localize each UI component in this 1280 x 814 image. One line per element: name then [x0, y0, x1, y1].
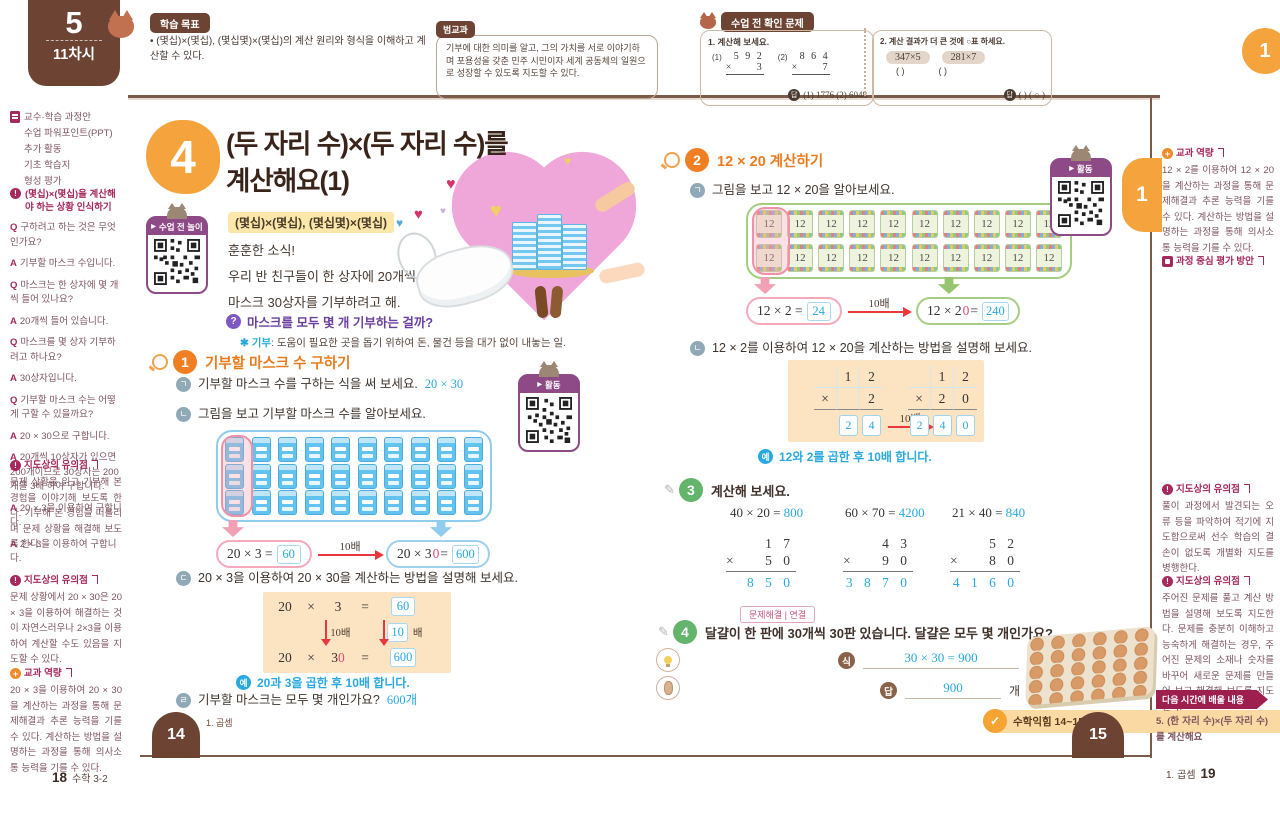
answer-box: 2	[839, 415, 858, 436]
answer-box: 60	[277, 545, 301, 564]
fox-icon	[700, 16, 716, 29]
example-badge: 예	[236, 675, 251, 690]
book-name: 수학 3-2	[72, 770, 108, 785]
cross-text: 기부에 대한 의미를 알고, 그의 가치를 서로 이야기하며 포용성을 갖춘 민…	[446, 43, 646, 78]
activity-1-header: 1 기부할 마스크 수 구하기	[152, 350, 351, 374]
answer-badge: 답	[788, 89, 800, 101]
pencil-icon: ✎	[658, 624, 669, 640]
answer: 8 5 0	[726, 572, 796, 591]
guide-page-number: 18	[52, 770, 67, 785]
item-row: ㄱ 기부할 마스크 수를 구하는 식을 써 보세요. 20 × 30	[176, 376, 463, 393]
note-text: 문제 상황을 읽고 기부해 본 경험을 이야기해 보도록 한다. 기부해 본 경…	[10, 475, 122, 553]
guide-page-number: 19	[1201, 766, 1216, 781]
activity-number: 4	[673, 620, 697, 644]
plus-icon	[10, 668, 21, 679]
expression-chip: 281×7	[942, 51, 986, 64]
right-footer: 1. 곱셈 19	[1166, 766, 1216, 781]
times-sign: ×	[792, 62, 800, 73]
equation-pink: 20 × 3 =60	[216, 540, 312, 568]
mask-stack	[562, 224, 587, 270]
qr-badge-activity: 활동	[518, 374, 580, 452]
qa-item: A30상자입니다.	[10, 372, 122, 387]
multiplicand: 5 9 2	[726, 51, 764, 62]
left-footer: 18 수학 3-2	[52, 770, 108, 785]
fox-icon	[108, 16, 134, 38]
equation-badge: 식	[838, 652, 855, 669]
egg-tray-illustration	[1025, 626, 1155, 706]
item-row: ㄹ 기부할 마스크는 모두 몇 개인가요? 600개	[176, 692, 417, 709]
caution-icon	[10, 460, 21, 471]
item-row: ㄴ 12 × 2를 이용하여 12 × 20을 계산하는 방법을 설명해 보세요…	[690, 340, 1032, 357]
answer: 600개	[387, 692, 417, 709]
qr-label: 수업 전 놀이	[148, 218, 206, 235]
qa-item: Q마스크는 한 상자에 몇 개씩 들어 있나요?	[10, 279, 122, 308]
mask-box-grid	[225, 437, 483, 515]
vertical-problem: 1 7 ×5 0 8 5 0	[726, 536, 796, 591]
example-answer: 예 20과 3을 곱한 후 10배 합니다.	[236, 674, 410, 691]
plus-icon	[1162, 148, 1173, 159]
problem-index: (2)	[778, 53, 788, 75]
activity-number: 3	[679, 478, 703, 502]
page-title: (두 자리 수)×(두 자리 수)를계산해요(1)	[226, 126, 508, 200]
qr-code[interactable]	[1058, 181, 1104, 227]
item-marker: ㄴ	[690, 341, 705, 356]
lesson-number: 5	[28, 7, 120, 39]
heart-icon: ♥	[490, 200, 502, 223]
check-header: 수업 전 확인 문제	[700, 12, 814, 32]
dotted-divider	[864, 28, 866, 96]
crayon-box-grid: 1212121212121212121212121212121212121212	[756, 210, 1062, 272]
heart-icon: ♥	[564, 154, 571, 168]
unit-corner-tab: 1	[1242, 28, 1280, 74]
competency-text: 12 × 2를 이용하여 12 × 20을 계산하는 과정을 통해 문제해결과 …	[1162, 163, 1274, 256]
times-sign: ×	[726, 62, 734, 73]
item-row: ㄷ 20 × 3을 이용하여 20 × 30을 계산하는 방법을 설명해 보세요…	[176, 570, 518, 587]
crayon-boxes-diagram: 1212121212121212121212121212121212121212	[746, 203, 1072, 279]
answer: 3 8 7 0	[843, 572, 913, 591]
pink-down-arrow	[754, 277, 776, 294]
equation-blue: 20 × 30 =600	[386, 540, 490, 568]
item-row: ㄴ 그림을 보고 기부할 마스크 수를 알아보세요.	[176, 406, 426, 423]
item-marker: ㄹ	[176, 693, 191, 708]
answer-line: 답 900 개	[880, 680, 1020, 699]
competency-text: 20 × 3을 이용하여 20 × 30을 계산하는 과정을 통해 문제해결과 …	[10, 683, 122, 776]
mask-boxes-diagram	[216, 430, 492, 522]
caution-icon	[1162, 576, 1173, 587]
factor-box: 10	[387, 623, 408, 642]
check-label: 수업 전 확인 문제	[721, 12, 814, 32]
example-answer: 예 12와 2를 곱한 후 10배 합니다.	[758, 448, 932, 465]
problem-title: 1. 계산해 보세요.	[708, 36, 866, 48]
question-icon	[10, 188, 21, 199]
qa-item: A기부할 마스크 수입니다.	[10, 257, 122, 272]
sidebar-competency: 교과 역량 12 × 2를 이용하여 12 × 20을 계산하는 과정을 통해 …	[1162, 148, 1274, 256]
hand-illustration	[550, 286, 564, 319]
answer-text: (1) 1776 (2) 6048	[803, 90, 867, 100]
qr-code[interactable]	[526, 397, 572, 443]
unit-name: 1. 곱셈	[206, 716, 233, 729]
item-marker: ㄷ	[176, 571, 191, 586]
bottom-divider	[140, 755, 1152, 757]
answer-value: 900	[905, 680, 1001, 699]
divider	[46, 40, 102, 41]
answer-line: 답 (1) 1776 (2) 6048	[788, 89, 867, 101]
answer: 4 1 6 0	[950, 572, 1020, 591]
cross-curricular-box: 기부에 대한 의미를 알고, 그의 가치를 서로 이야기하며 포용성을 갖춘 민…	[436, 35, 658, 99]
question-mark-icon: ?	[226, 314, 241, 329]
activity-2-header: 2 12 × 20 계산하기	[664, 148, 823, 172]
heart-icon: ♥	[440, 206, 446, 217]
next-lesson-label: 다음 시간에 배울 내용	[1156, 690, 1268, 709]
equation-value: 30 × 30 = 900	[863, 650, 1019, 669]
qa-title: (몇십)×(몇십)을 계산해야 하는 상황 인식하기	[25, 188, 122, 214]
item-row: ㄱ 그림을 보고 12 × 20을 알아보세요.	[690, 182, 894, 199]
equation-answer: 40 × 20 = 800	[730, 505, 803, 521]
multiplier: 7	[823, 62, 830, 73]
problem-index: (1)	[712, 53, 722, 75]
qa-item: Q기부할 마스크 수는 어떻게 구할 수 있을까요?	[10, 394, 122, 423]
heart-icon: ♥	[396, 216, 403, 230]
sidebar-assessment: 과정 중심 평가 방안	[1162, 256, 1274, 271]
hand-illustration	[598, 261, 646, 284]
resource-item: 기초 학습지	[10, 158, 122, 174]
pencil-icon: ✎	[664, 482, 675, 498]
equation-answer: 60 × 70 = 4200	[845, 505, 925, 521]
subtitle-highlight: (몇십)×(몇십), (몇십몇)×(몇십)	[228, 212, 394, 233]
activity-title: 계산해 보세요.	[711, 481, 790, 500]
caution-icon	[10, 575, 21, 586]
item-marker: ㄱ	[690, 183, 705, 198]
note-text: 문제 상황에서 20 × 30은 20 × 3을 이용하여 해결하는 것이 자연…	[10, 590, 122, 668]
resource-item: 교수·학습 과정안	[24, 110, 91, 126]
blue-down-arrow	[430, 520, 452, 537]
vertical-mult-left: 12 ×2 24	[814, 366, 883, 436]
activity-number: 1	[173, 350, 197, 374]
answer-blanks: ( )( )	[896, 66, 1044, 76]
qr-label: 활동	[1052, 160, 1110, 177]
goal-header: 학습 목표	[150, 13, 210, 33]
chapter-side-tab: 1	[1122, 158, 1162, 232]
goal-label: 학습 목표	[150, 13, 210, 33]
answer-line: 답 ( ) ( ○ )	[1004, 89, 1045, 101]
vertical-mult: (1) 5 9 2 ×3	[712, 51, 764, 75]
sidebar-note: 지도상의 유의점 문제 상황을 읽고 기부해 본 경험을 이야기해 보도록 한다…	[10, 460, 122, 553]
heart-icon: ♥	[414, 206, 423, 223]
textbook-page-tab: 14	[152, 712, 200, 758]
times-ten-label: 10배	[868, 295, 889, 311]
vertical-mult-right: 12 ×20 240	[908, 366, 977, 436]
sidebar-resources: 교수·학습 과정안 수업 파워포인트(PPT) 추가 활동 기초 학습지 형성 …	[10, 110, 122, 190]
answer-unit: 개	[1009, 682, 1020, 699]
magnifier-icon	[152, 354, 168, 370]
item-marker: ㄱ	[176, 377, 191, 392]
qa-item: Q마스크를 몇 상자 기부하려고 하나요?	[10, 336, 122, 365]
qa-item: Q구하려고 하는 것은 무엇인가요?	[10, 221, 122, 250]
equation-green: 12 × 20 =240	[916, 297, 1020, 325]
times-ten-label: 10배	[339, 538, 360, 554]
equation-line: 식 30 × 30 = 900	[838, 650, 1019, 669]
steps-box: 20× 3= 60 10배 10배 20× 30 = 600	[263, 592, 451, 673]
pink-down-arrow	[222, 520, 244, 537]
magnifier-icon	[664, 152, 680, 168]
vertical-mult-box: 12 ×2 24 10배 12 ×20 240	[788, 360, 984, 442]
resource-item: 수업 파워포인트(PPT)	[10, 126, 122, 142]
vertical-mult: (2) 8 6 4 ×7	[778, 51, 830, 75]
caution-icon	[1162, 484, 1173, 495]
qa-item: A20 × 30으로 구합니다.	[10, 430, 122, 445]
note-text: 풀이 과정에서 발견되는 오류 등을 파악하여 적기에 지도함으로써 선수 학습…	[1162, 499, 1274, 577]
hint-bulb-icon	[656, 648, 680, 672]
example-badge: 예	[758, 449, 773, 464]
qr-label: 활동	[520, 376, 578, 393]
cat-icon	[539, 365, 559, 377]
teacher-guide-spread: 5 11차시 학습 목표 • (몇십)×(몇십), (몇십몇)×(몇십)의 계산…	[0, 0, 1280, 814]
activity-number: 2	[685, 148, 709, 172]
unit-name: 1. 곱셈	[1166, 766, 1196, 781]
vertical-problem: 4 3 ×9 0 3 8 7 0	[843, 536, 913, 591]
times-ten-arrow: 10배	[318, 554, 382, 556]
answer-box: 24	[807, 302, 831, 321]
textbook-page-tab: 15	[1072, 712, 1124, 758]
equation-answer: 21 × 40 = 840	[952, 505, 1025, 521]
mask-stack	[537, 214, 562, 270]
check-problem-1: 1. 계산해 보세요. (1) 5 9 2 ×3 (2) 8 6 4 ×7 답 …	[700, 30, 874, 106]
item-marker: ㄴ	[176, 407, 191, 422]
activity-3-header: ✎ 3 계산해 보세요.	[664, 478, 790, 502]
answer-box: 60	[391, 597, 415, 616]
qr-badge-preclass: 수업 전 놀이	[146, 216, 208, 294]
times-ten-arrow: 10배	[848, 311, 910, 313]
check-problem-2: 2. 계산 결과가 더 큰 것에 ○표 하세요. 347×5 281×7 ( )…	[872, 30, 1052, 106]
lesson-badge: 5 11차시	[28, 0, 120, 86]
answer-badge: 답	[880, 682, 897, 699]
main-question: ? 마스크를 모두 몇 개 기부하는 걸까?	[226, 312, 433, 331]
activity-title: 12 × 20 계산하기	[717, 150, 823, 171]
first-column-highlight	[221, 435, 253, 517]
cross-header: 범교과	[436, 20, 475, 38]
qr-code[interactable]	[154, 239, 200, 285]
vertical-problem: 5 2 ×8 0 4 1 6 0	[950, 536, 1020, 591]
answer-box: 600	[390, 648, 417, 667]
answer-box: 600	[452, 545, 479, 564]
red-down-arrow	[325, 620, 327, 644]
answer-box: 4	[862, 415, 881, 436]
goal-text: • (몇십)×(몇십), (몇십몇)×(몇십)의 계산 원리와 형식을 이해하고…	[150, 34, 432, 64]
equation-pink: 12 × 2 =24	[746, 297, 842, 325]
next-lesson-text: 5. (한 자리 수)×(두 자리 수)를 계산해요	[1156, 714, 1268, 745]
activity-4-header: ✎ 4 달걀이 한 판에 30개씩 30판 있습니다. 달걀은 모두 몇 개인가…	[658, 620, 1053, 644]
word-problem: 달걀이 한 판에 30개씩 30판 있습니다. 달걀은 모두 몇 개인가요?	[705, 623, 1053, 642]
cat-icon	[1071, 149, 1091, 161]
problem-title: 2. 계산 결과가 더 큰 것에 ○표 하세요.	[880, 36, 1044, 47]
qr-badge-activity: 활동	[1050, 158, 1112, 236]
expression-chip: 347×5	[886, 51, 930, 64]
multiplicand: 8 6 4	[792, 51, 830, 62]
lesson-session: 11차시	[28, 43, 120, 64]
assessment-icon	[1162, 256, 1173, 267]
resource-item: 추가 활동	[10, 142, 122, 158]
answer-box: 0	[956, 415, 975, 436]
lesson-number-blob: 4	[146, 120, 220, 194]
answer-box: 2	[910, 415, 929, 436]
answer-box: 240	[982, 302, 1009, 321]
first-column-highlight	[752, 207, 790, 275]
multiplier: 3	[757, 62, 764, 73]
answer: 20 × 30	[425, 376, 463, 393]
cross-label: 범교과	[436, 21, 475, 38]
book-icon	[10, 111, 20, 123]
sidebar-note: 지도상의 유의점 문제 상황에서 20 × 30은 20 × 3을 이용하여 해…	[10, 575, 122, 668]
cat-icon	[167, 207, 187, 219]
sidebar-competency: 교과 역량 20 × 3을 이용하여 20 × 30을 계산하는 과정을 통해 …	[10, 668, 122, 776]
qa-item: A20개씩 들어 있습니다.	[10, 315, 122, 330]
answer-badge: 답	[1004, 89, 1016, 101]
activity-title: 기부할 마스크 수 구하기	[205, 352, 351, 373]
answer-box: 4	[933, 415, 952, 436]
mask-stack	[512, 222, 537, 270]
sidebar-note: 지도상의 유의점 풀이 과정에서 발견되는 오류 등을 파악하여 적기에 지도함…	[1162, 484, 1274, 577]
green-down-arrow	[938, 277, 960, 294]
next-lesson-banner: 다음 시간에 배울 내용 5. (한 자리 수)×(두 자리 수)를 계산해요	[1156, 690, 1268, 745]
hint-peanut-icon	[656, 676, 680, 700]
red-down-arrow	[383, 620, 385, 644]
answer-text: ( ) ( ○ )	[1019, 90, 1045, 100]
